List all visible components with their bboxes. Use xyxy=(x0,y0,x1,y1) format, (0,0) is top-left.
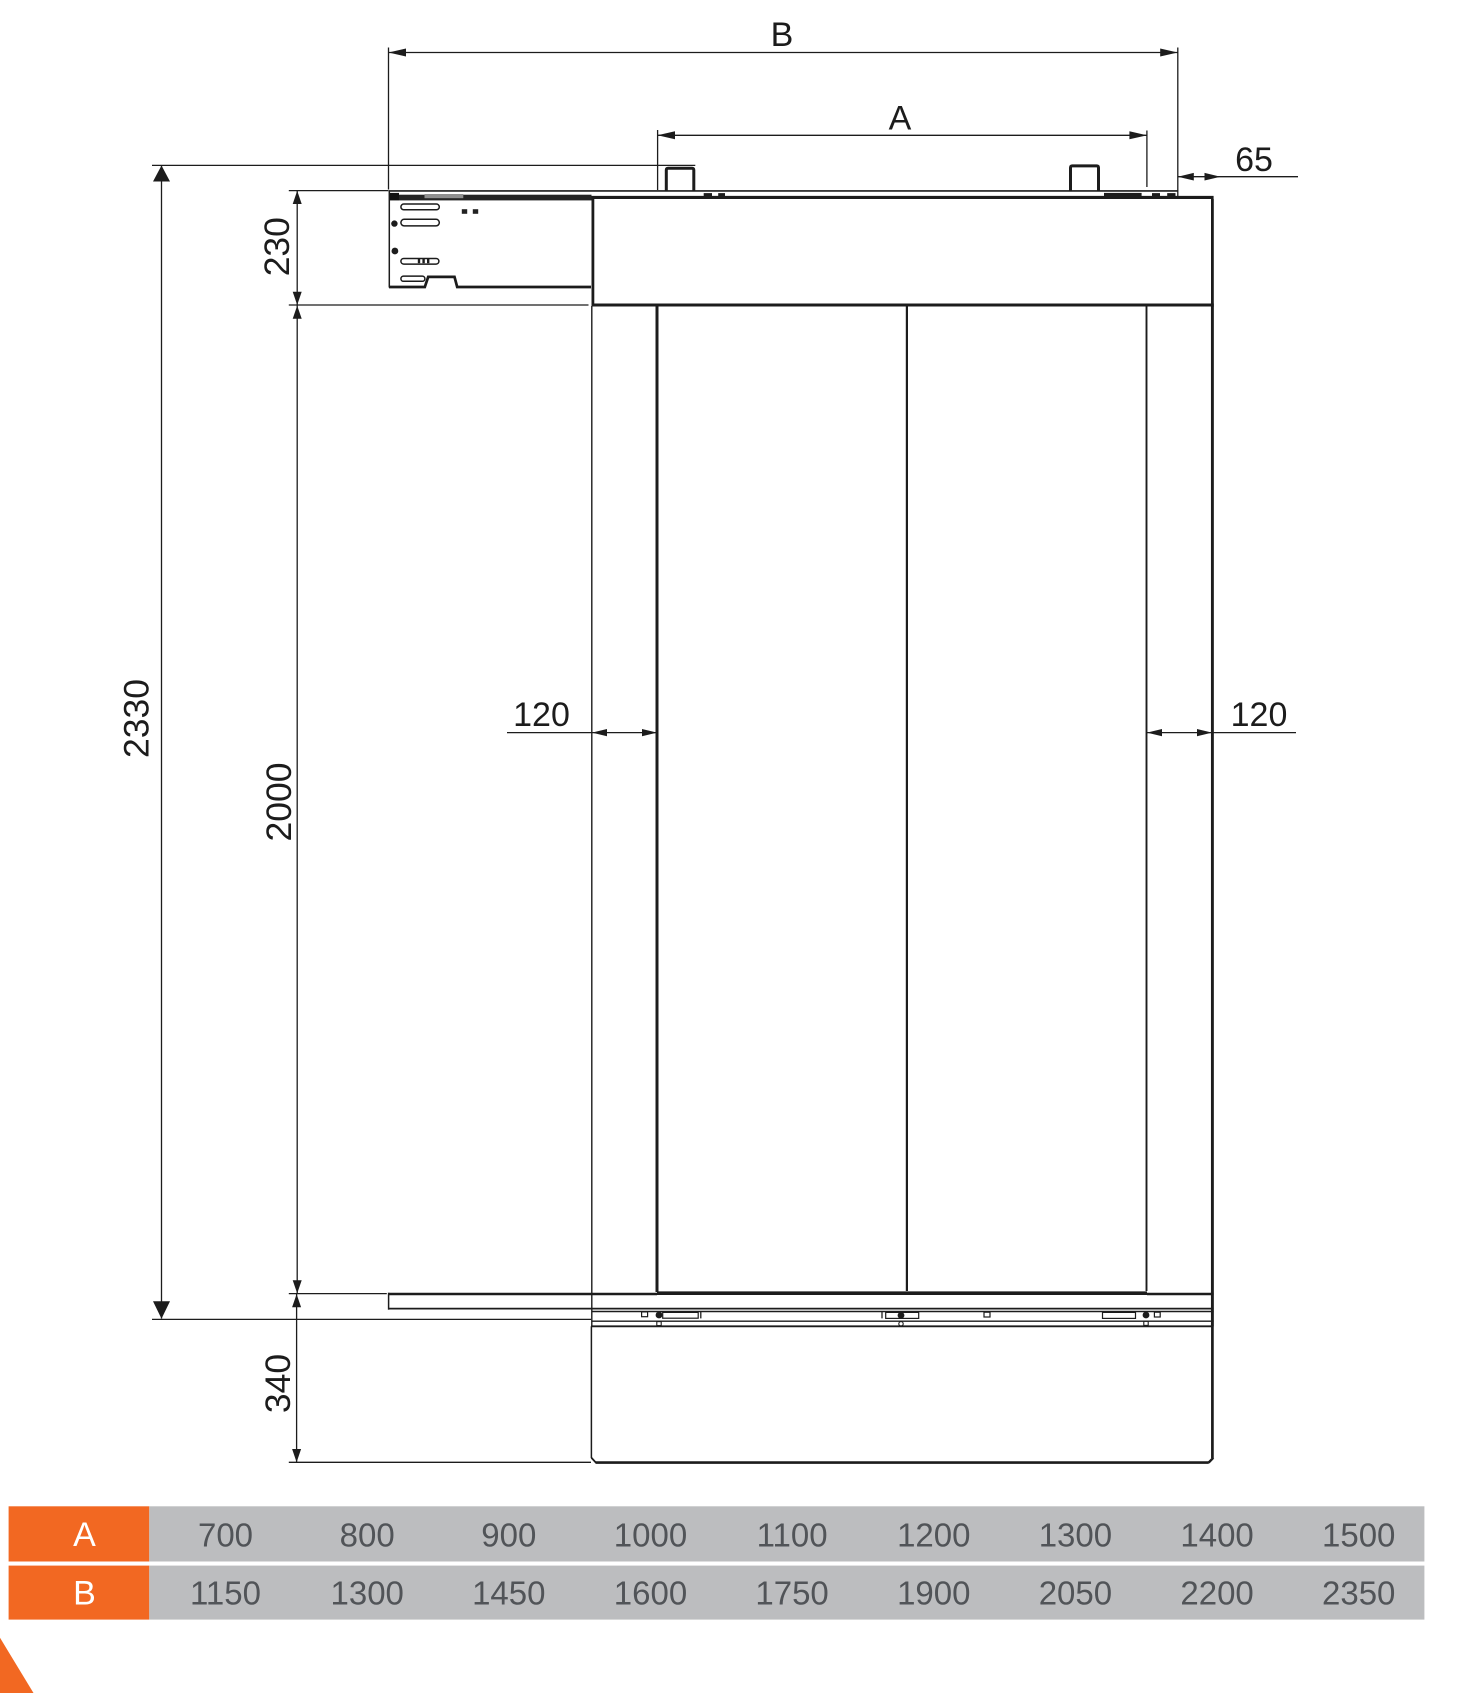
svg-text:2330: 2330 xyxy=(117,679,157,758)
svg-text:900: 900 xyxy=(481,1517,536,1554)
svg-text:1150: 1150 xyxy=(190,1575,261,1612)
svg-text:1500: 1500 xyxy=(1322,1517,1395,1554)
svg-text:1000: 1000 xyxy=(614,1517,687,1554)
svg-text:1400: 1400 xyxy=(1180,1517,1253,1554)
svg-text:B: B xyxy=(73,1575,96,1613)
svg-text:700: 700 xyxy=(198,1517,253,1554)
svg-text:1750: 1750 xyxy=(755,1575,828,1612)
svg-text:2050: 2050 xyxy=(1039,1575,1112,1612)
svg-text:A: A xyxy=(889,100,912,138)
svg-text:B: B xyxy=(771,16,794,54)
svg-text:1450: 1450 xyxy=(472,1575,545,1612)
svg-text:1300: 1300 xyxy=(1039,1517,1112,1554)
svg-text:2000: 2000 xyxy=(259,763,299,842)
svg-text:120: 120 xyxy=(513,696,570,734)
svg-text:65: 65 xyxy=(1235,141,1273,179)
svg-text:1600: 1600 xyxy=(614,1575,687,1612)
svg-text:A: A xyxy=(73,1516,96,1554)
svg-text:1100: 1100 xyxy=(757,1517,828,1554)
svg-text:800: 800 xyxy=(340,1517,395,1554)
svg-text:340: 340 xyxy=(258,1354,298,1413)
svg-text:1200: 1200 xyxy=(897,1517,970,1554)
svg-text:2350: 2350 xyxy=(1322,1575,1395,1612)
svg-text:230: 230 xyxy=(257,217,297,276)
svg-text:1300: 1300 xyxy=(330,1575,403,1612)
svg-text:120: 120 xyxy=(1231,696,1288,734)
svg-text:2200: 2200 xyxy=(1180,1575,1253,1612)
svg-text:1900: 1900 xyxy=(897,1575,970,1612)
